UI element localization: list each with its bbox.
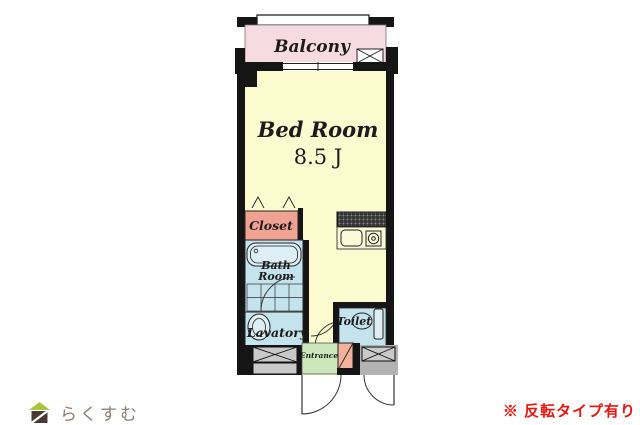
bedroom-label: Bed Room	[257, 117, 379, 142]
entrance-door-swing	[302, 375, 341, 414]
lavatory-label: Lavatory	[246, 325, 308, 340]
window	[283, 62, 353, 71]
entrance-door-arc	[302, 375, 341, 414]
bottom-section: Entrance	[237, 343, 398, 375]
wall-bottom-under-cabinet	[337, 368, 354, 375]
site-logo: らくすむ	[27, 400, 140, 425]
balcony-label: Balcony	[273, 37, 351, 57]
toilet-wall-top	[333, 302, 394, 308]
house-logo-icon	[27, 401, 52, 424]
wall-pillar-notch	[244, 70, 257, 87]
floor-plan-drawing: Balcony Bed Room 8.5 J	[0, 0, 640, 425]
bedroom-size-label: 8.5 J	[294, 145, 343, 169]
floor-plan-page: Balcony Bed Room 8.5 J	[0, 0, 640, 425]
kitchen-unit	[337, 212, 386, 249]
mirror-type-note: ※ 反転タイプ有り	[503, 400, 636, 421]
porch-door-swing	[364, 375, 394, 405]
site-logo-text: らくすむ	[60, 400, 140, 425]
closet-label: Closet	[249, 218, 293, 233]
kitchen-counter-top	[337, 212, 386, 227]
storage-x-icon-right	[362, 347, 395, 361]
closet-wall	[298, 208, 303, 240]
storage-x-icon-left	[253, 347, 297, 374]
toilet: Toilet	[333, 302, 394, 347]
balcony-railing-icon	[257, 15, 369, 25]
porch-door-arc	[364, 375, 394, 405]
shoe-cabinet-icon	[338, 343, 353, 370]
lavatory: Lavatory	[245, 312, 308, 347]
toilet-label: Toilet	[337, 315, 372, 328]
washer-space-icon	[357, 49, 383, 63]
wall-left	[237, 62, 245, 375]
entrance-label: Entrance	[299, 351, 338, 360]
wall-bottom-mid	[353, 343, 360, 375]
bath-label-line2: Room	[257, 270, 293, 283]
